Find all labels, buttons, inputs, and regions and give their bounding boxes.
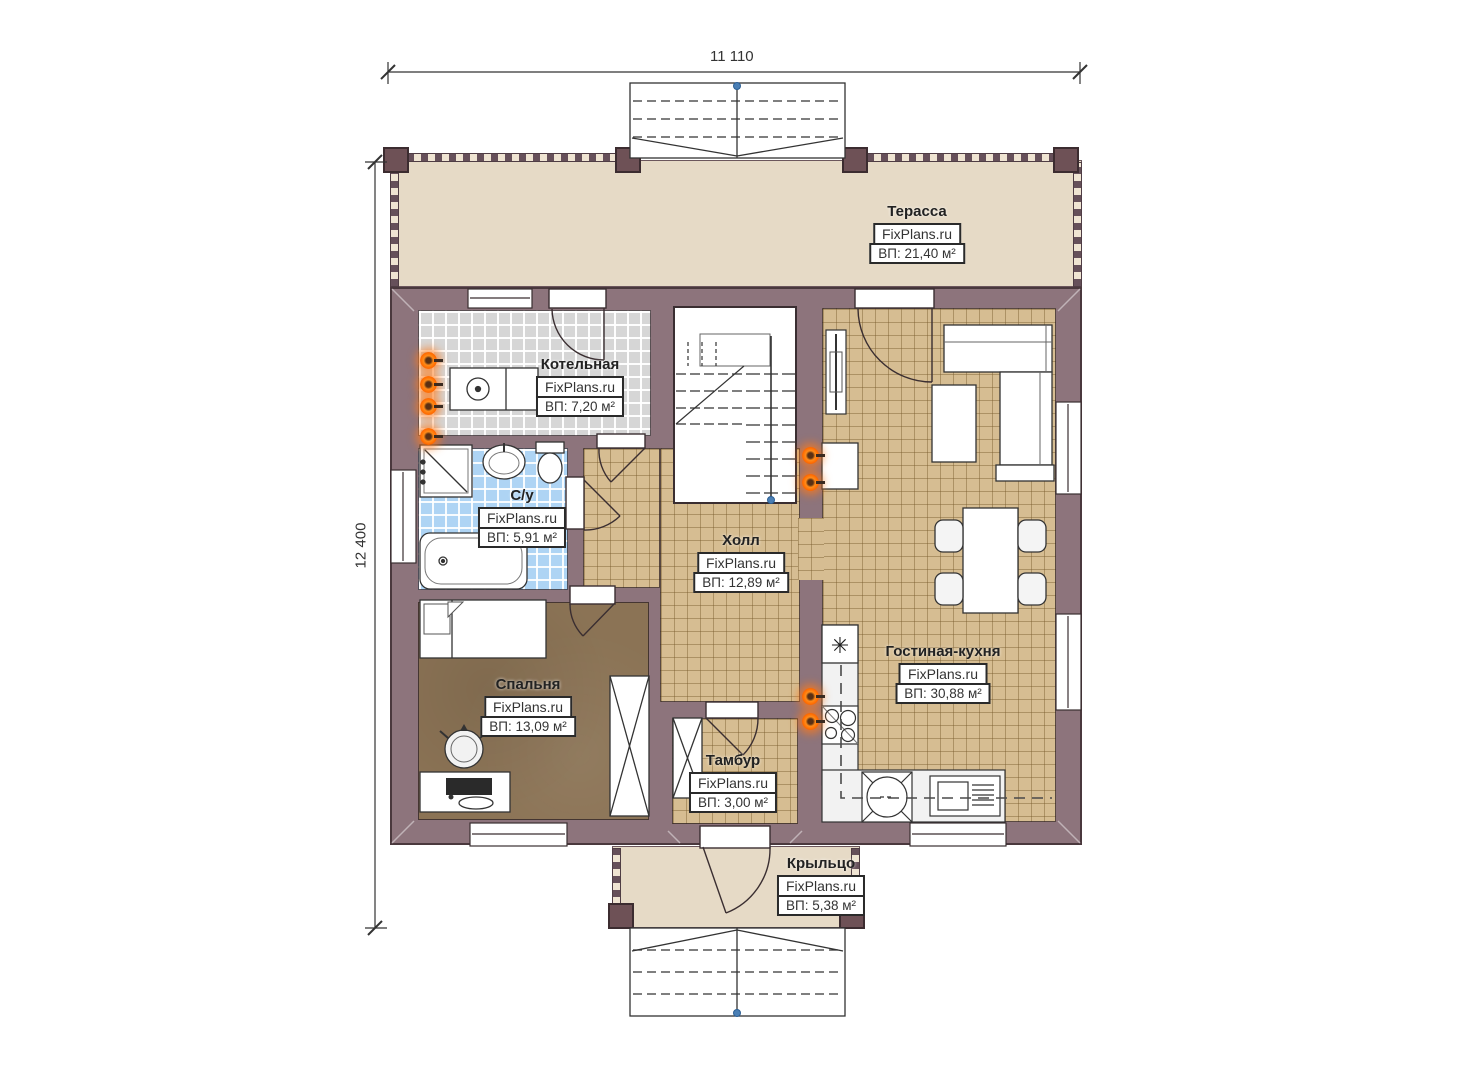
window-left-bathroom [391, 470, 416, 563]
door-hall-to-vestibule [706, 702, 758, 755]
door-bathroom [566, 477, 620, 530]
dimension-height-label: 12 400 [352, 523, 369, 569]
dimension-line-top [381, 62, 1087, 84]
door-terrace-to-boiler [549, 289, 606, 360]
watermark-box: FixPlans.ru [484, 696, 572, 718]
room-title: Котельная [541, 356, 620, 373]
room-title: Крыльцо [787, 855, 855, 872]
room-title: Терасса [887, 203, 946, 220]
bed [420, 600, 546, 658]
watermark-box: FixPlans.ru [777, 875, 865, 897]
door-boiler-to-hall [597, 434, 645, 482]
window-right-living-2 [1056, 614, 1081, 710]
watermark-box: FixPlans.ru [873, 223, 961, 245]
desk-with-computer [420, 772, 510, 812]
area-box: ВП: 7,20 м² [536, 396, 624, 417]
dishwasher [930, 776, 1000, 816]
watermark-box: FixPlans.ru [536, 376, 624, 398]
watermark-box: FixPlans.ru [689, 772, 777, 794]
terrace-steps [630, 83, 845, 159]
area-box: ВП: 3,00 м² [689, 792, 777, 813]
coffee-table [932, 385, 976, 462]
window-right-living-1 [1056, 402, 1081, 494]
wall-cabinet [822, 443, 858, 489]
watermark-box: FixPlans.ru [478, 507, 566, 529]
room-title: Гостиная-кухня [886, 643, 1001, 660]
room-title: Тамбур [706, 752, 760, 769]
window-bottom-kitchen [910, 823, 1006, 846]
room-label-bathroom: С/у FixPlans.ru ВП: 5,91 м² [478, 487, 566, 548]
room-label-living-kitchen: Гостиная-кухня FixPlans.ru ВП: 30,88 м² [886, 643, 1001, 704]
window-top-boiler [468, 289, 532, 308]
bathroom-sink [483, 443, 525, 479]
area-box: ВП: 30,88 м² [895, 683, 991, 704]
stove [822, 706, 858, 744]
room-label-vestibule: Тамбур FixPlans.ru ВП: 3,00 м² [689, 752, 777, 813]
room-label-hall: Холл FixPlans.ru ВП: 12,89 м² [693, 532, 789, 593]
window-bottom-bedroom [470, 823, 567, 846]
tall-radiator [826, 330, 846, 414]
staircase [676, 334, 795, 504]
wardrobe-bedroom [610, 676, 649, 816]
kitchen-sink [862, 772, 912, 822]
shower-cabin [420, 445, 472, 497]
dimension-width-label: 11 110 [710, 48, 754, 65]
area-box: ВП: 21,40 м² [869, 243, 965, 264]
area-box: ВП: 5,91 м² [478, 527, 566, 548]
radiator-marker-kitchen-2 [802, 713, 819, 730]
dining-table [963, 508, 1018, 613]
room-title: Холл [722, 532, 760, 549]
room-label-porch: Крыльцо FixPlans.ru ВП: 5,38 м² [777, 855, 865, 916]
radiator-marker-hall-1 [802, 447, 819, 464]
area-box: ВП: 12,89 м² [693, 572, 789, 593]
floor-plan: ✳ [0, 0, 1473, 1080]
room-label-terrace: Терасса FixPlans.ru ВП: 21,40 м² [869, 203, 965, 264]
radiator-marker-boiler-2 [420, 376, 437, 393]
boiler-unit [450, 368, 538, 410]
radiator-marker-boiler-1 [420, 352, 437, 369]
room-title: С/у [510, 487, 533, 504]
radiator-marker-boiler-4 [420, 428, 437, 445]
door-terrace-to-living [855, 289, 934, 382]
watermark-box: FixPlans.ru [899, 663, 987, 685]
room-label-bedroom: Спальня FixPlans.ru ВП: 13,09 м² [480, 676, 576, 737]
door-entrance [700, 826, 770, 913]
radiator-marker-hall-2 [802, 474, 819, 491]
area-box: ВП: 13,09 м² [480, 716, 576, 737]
door-bedroom [570, 586, 615, 636]
area-box: ВП: 5,38 м² [777, 895, 865, 916]
room-label-boiler: Котельная FixPlans.ru ВП: 7,20 м² [536, 356, 624, 417]
fridge: ✳ [822, 625, 858, 663]
toilet [536, 442, 564, 483]
radiator-marker-kitchen-1 [802, 688, 819, 705]
room-title: Спальня [496, 676, 561, 693]
watermark-box: FixPlans.ru [697, 552, 785, 574]
freezer-icon: ✳ [831, 633, 849, 658]
porch-steps [630, 928, 845, 1017]
radiator-marker-boiler-3 [420, 398, 437, 415]
